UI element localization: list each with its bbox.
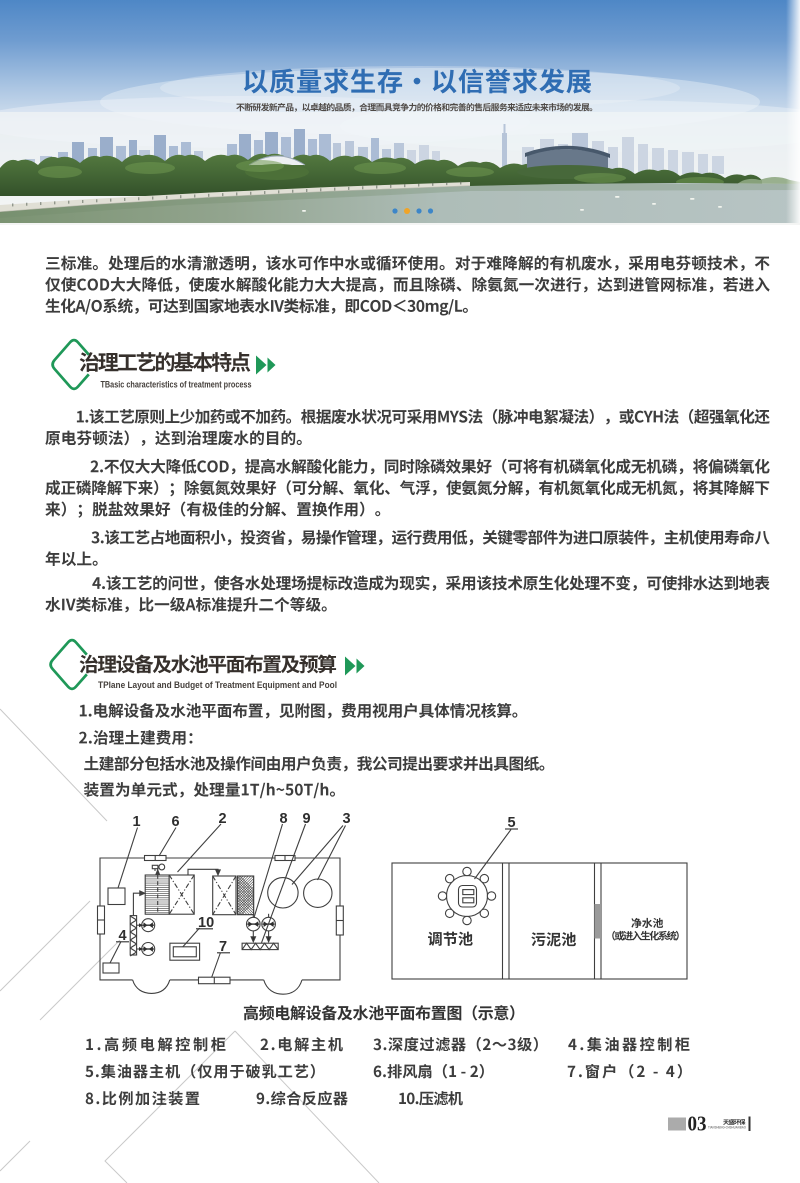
svg-text:1: 1	[133, 814, 141, 830]
svg-text:TPlane Layout and Budget of Tr: TPlane Layout and Budget of Treatment Eq…	[98, 680, 337, 690]
svg-text:TBasic characteristics of trea: TBasic characteristics of treatment proc…	[101, 380, 252, 390]
svg-text:TIANSHENG-CHSHUANBAO: TIANSHENG-CHSHUANBAO	[708, 1126, 746, 1130]
svg-text:03: 03	[688, 1112, 707, 1136]
svg-text:2: 2	[219, 811, 227, 827]
svg-text:9: 9	[303, 811, 311, 827]
svg-text:8: 8	[280, 811, 288, 827]
svg-text:6: 6	[172, 814, 180, 830]
svg-text:3: 3	[343, 811, 351, 827]
